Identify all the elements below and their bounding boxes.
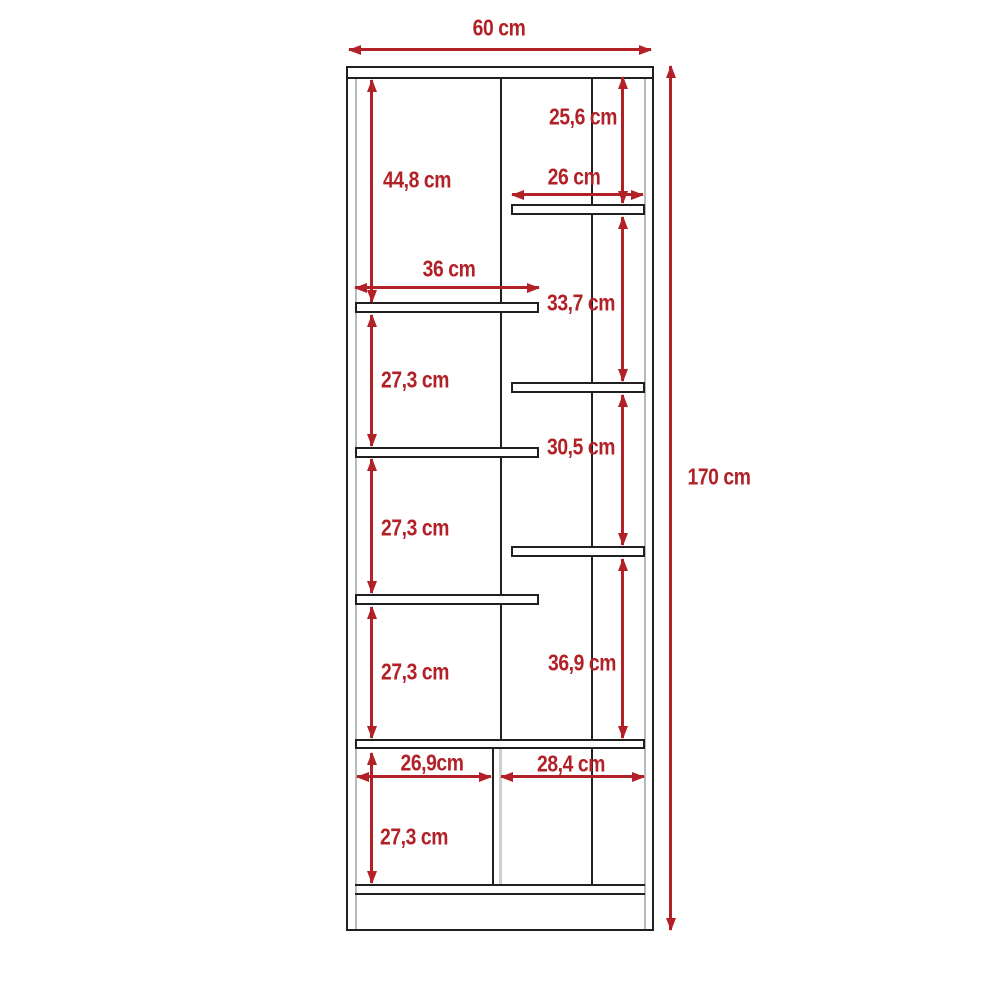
shelf-left-1 bbox=[355, 302, 539, 313]
plinth-top-line bbox=[355, 893, 645, 895]
dim-arrow-total-height bbox=[669, 66, 672, 930]
dim-arrow-left-section-3 bbox=[370, 459, 373, 593]
bottom-section-divider-seam bbox=[499, 748, 502, 884]
dim-label-left-section-1: 44,8 cm bbox=[383, 167, 451, 194]
cabinet-left-wall-inner bbox=[355, 79, 357, 929]
mid-horizontal-divider bbox=[355, 739, 645, 749]
dim-label-left-section-2: 27,3 cm bbox=[381, 367, 449, 394]
dim-label-left-shelf-width: 36 cm bbox=[423, 256, 476, 283]
dim-label-left-section-3: 27,3 cm bbox=[381, 515, 449, 542]
dim-label-right-section-3: 30,5 cm bbox=[547, 434, 615, 461]
dim-label-right-section-4: 36,9 cm bbox=[548, 650, 616, 677]
dim-arrow-left-shelf-width bbox=[355, 286, 539, 289]
dim-label-left-section-4: 27,3 cm bbox=[381, 659, 449, 686]
dim-label-total-width: 60 cm bbox=[473, 15, 526, 42]
dim-arrow-right-section-2 bbox=[621, 217, 624, 381]
dim-label-right-shelf-width: 26 cm bbox=[548, 164, 601, 191]
bottom-section-divider bbox=[492, 748, 494, 884]
shelf-right-3 bbox=[511, 546, 645, 557]
furniture-dimension-diagram: 60 cm 25,6 cm 44,8 cm 26 cm 36 cm 33,7 c… bbox=[0, 0, 1000, 1000]
dim-arrow-right-section-1 bbox=[621, 77, 624, 203]
cabinet-left-wall-outer bbox=[346, 66, 348, 931]
dim-arrow-left-section-1 bbox=[370, 80, 373, 302]
dim-arrow-total-width bbox=[349, 48, 651, 51]
shelf-left-3 bbox=[355, 594, 539, 605]
dim-arrow-right-section-4 bbox=[621, 559, 624, 738]
shelf-right-2 bbox=[511, 382, 645, 393]
dim-label-right-section-2: 33,7 cm bbox=[547, 290, 615, 317]
dim-label-bottom-left-width: 26,9cm bbox=[400, 750, 463, 777]
shelf-left-2 bbox=[355, 447, 539, 458]
cabinet-right-wall-outer bbox=[652, 66, 654, 931]
dim-label-right-section-1: 25,6 cm bbox=[549, 104, 617, 131]
dim-label-bottom-section-height: 27,3 cm bbox=[380, 824, 448, 851]
dim-arrow-bottom-section-height bbox=[370, 753, 373, 883]
dim-label-total-height: 170 cm bbox=[687, 464, 750, 491]
cabinet-top-panel bbox=[346, 66, 654, 79]
center-vertical-divider bbox=[500, 79, 502, 740]
interior-bottom-line bbox=[355, 884, 645, 886]
dim-arrow-right-section-3 bbox=[621, 395, 624, 545]
shelf-right-1 bbox=[511, 204, 645, 215]
dim-arrow-left-section-4 bbox=[370, 607, 373, 738]
dim-label-bottom-right-width: 28,4 cm bbox=[537, 751, 605, 778]
cabinet-base-line bbox=[346, 929, 654, 931]
dim-arrow-left-section-2 bbox=[370, 315, 373, 446]
